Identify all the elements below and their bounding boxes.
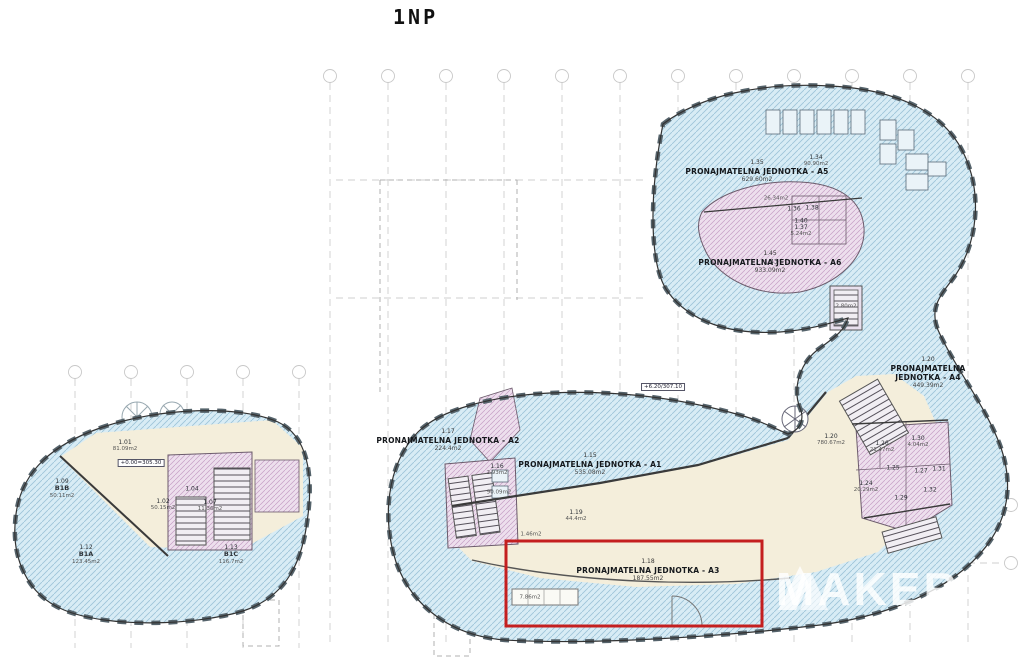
room-stamp: 90.09m2: [487, 490, 512, 497]
room-stamp: 1.1944.4m2: [565, 509, 586, 523]
room-stamp: 7.86m2: [519, 595, 540, 602]
room-stamp: 1.40: [794, 217, 807, 224]
room-stamp: 1.2420.29m2: [854, 480, 879, 494]
room-stamp: 1.04: [185, 485, 198, 492]
room-stamp: 1.13B1C116.7m2: [219, 544, 244, 566]
room-stamp: 1.46m2: [520, 532, 541, 539]
floor-plan-canvas: 1NP 1.35 PRONAJMATELNA JEDNOTKA - A5 629…: [0, 0, 1024, 663]
room-stamp: 1.38: [805, 204, 818, 211]
room-stamp: 1.0250.15m2: [151, 498, 176, 512]
left-building: [15, 411, 310, 623]
page-title: 1NP: [393, 5, 438, 29]
room-stamp: 1.304.04m2: [907, 435, 928, 449]
unit-label-a4: 1.20 PRONAJMATELNA JEDNOTKA - A4 449.39m…: [884, 356, 972, 390]
elevation-stamp: +0.00=305.30: [118, 459, 165, 467]
maker-watermark: MAKER: [776, 562, 960, 616]
room-stamp: 1.375.24m2: [790, 224, 811, 238]
room-stamp: 1.0711.36m2: [198, 499, 223, 513]
survey-symbol: [782, 406, 808, 432]
maker-logo-icon: [776, 562, 830, 612]
room-stamp: 26.34m2: [764, 196, 789, 203]
room-stamp: 1.2621.47m2: [870, 440, 895, 454]
room-stamp: 1.3490.90m2: [804, 154, 829, 168]
room-stamp: 1.36: [787, 205, 800, 212]
room-stamp: 1.32: [923, 486, 936, 493]
elevation-stamp: +6.20/307.10: [641, 383, 685, 391]
unit-label-a2: 1.17 PRONAJMATELNA JEDNOTKA - A2 224.4m2: [376, 428, 519, 452]
room-stamp: 1.27: [914, 467, 927, 474]
room-stamp: 1.20780.67m2: [817, 433, 845, 447]
room-stamp: 2.80m2: [835, 304, 856, 311]
room-stamp: 1.31: [932, 465, 945, 472]
room-stamp: 1.25: [886, 464, 899, 471]
unit-label-a3: 1.18 PRONAJMATELNA JEDNOTKA - A3 187.55m…: [576, 558, 719, 582]
room-stamp: 1.09B1B50.11m2: [50, 478, 75, 500]
room-stamp: 1.0181.09m2: [113, 439, 138, 453]
room-stamp: 1.12B1A123.45m2: [72, 544, 100, 566]
room-stamp: 1.29: [894, 494, 907, 501]
unit-label-a1: 1.15 PRONAJMATELNA JEDNOTKA - A1 535.08m…: [518, 452, 661, 476]
room-stamp: 1.43: [764, 258, 777, 265]
room-stamp: 1.162.93m2: [486, 463, 507, 477]
